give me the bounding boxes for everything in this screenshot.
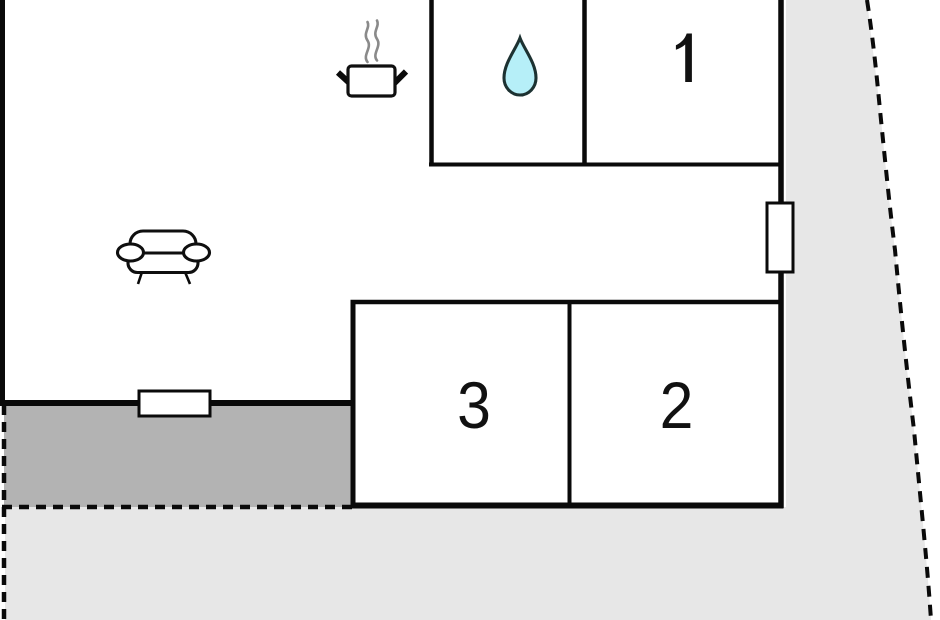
svg-text:2: 2 [660,370,694,443]
svg-text:3: 3 [457,370,491,443]
